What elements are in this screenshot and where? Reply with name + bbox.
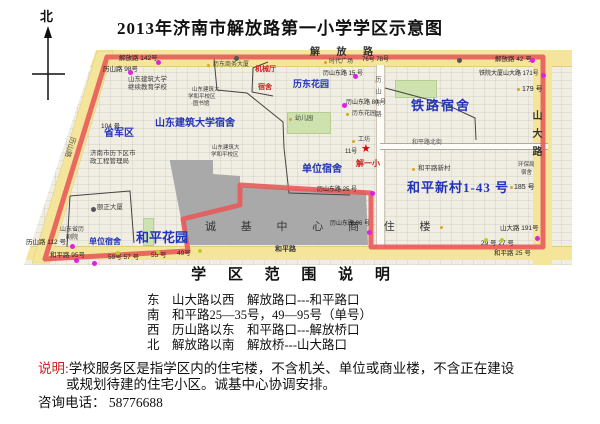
poi-dot-green (198, 249, 202, 253)
road-label-heping-north: 和平路北街 (412, 140, 442, 146)
address-label: 185 号 (514, 184, 535, 191)
poi-dot-yellow (517, 88, 520, 91)
poi-dot-yellow (510, 186, 513, 189)
building-label: 山东省历 (60, 227, 84, 233)
area-label-tielu-sushe: 铁路宿舍 (411, 99, 471, 112)
address-label: 59号 57 号 (108, 255, 139, 262)
building-label: 时代广场 (329, 59, 353, 65)
poi-dot-yellow (207, 64, 210, 67)
building-label: 环保局 (518, 163, 535, 169)
label-jixieting: 机械厅 (255, 66, 276, 73)
poi-dot-magenta (353, 74, 358, 79)
building-label: 工坊 (358, 137, 370, 143)
poi-dot-magenta (70, 244, 75, 249)
poi-dot-dark (457, 58, 462, 63)
note-line2: 或规划待建的住宅小区。诚基中心协调安排。 (66, 373, 336, 393)
building-label: 和平路新村 (418, 166, 451, 173)
building-label: 山东建筑大学 (128, 77, 167, 84)
poi-dot-magenta (535, 236, 540, 241)
poi-dot-magenta (156, 60, 161, 65)
legend-heading: 学 区 范 围 说 明 (5, 263, 585, 284)
building-label: 山东建筑大 (192, 88, 220, 94)
label-chengji-center: 诚 基 中 心 商 住 楼 (205, 222, 442, 233)
building-label: ·图书馆 (191, 102, 209, 108)
area-label-shengjunqu: 省军区 (104, 129, 134, 139)
poi-dot-magenta (367, 230, 372, 235)
building-label: 宿舍 (521, 171, 532, 177)
poi-dot-magenta (128, 70, 133, 75)
school-star-icon: ★ (361, 144, 371, 155)
area-label-danwei-sushe-mid: 单位宿舍 (302, 165, 342, 175)
address-label: 解放路 42 号 (495, 57, 532, 64)
poi-dot-green (500, 238, 504, 242)
address-label: 铁院大厦山大路 171号 (479, 71, 539, 77)
poi-dot-magenta (342, 103, 347, 108)
address-label: 历山东路 80 号 (346, 100, 386, 106)
poi-dot-yellow (324, 61, 327, 64)
address-label: 179 号 (522, 86, 543, 93)
building-label: 济南市历下区市 (90, 151, 136, 158)
building-label: 学和平校区 (211, 153, 239, 159)
label-jixieting-sushe: 宿舍 (258, 84, 272, 91)
building-label: 山东建筑大 (212, 146, 240, 152)
poi-dot-magenta (530, 58, 535, 63)
legend-line-north: 北 解放路以南 解放桥---山大路口 (147, 334, 347, 353)
heping-north-street-band (380, 143, 548, 150)
poi-dot-yellow (289, 118, 292, 121)
address-label: 历山路 112 号 (26, 240, 66, 247)
page-title: 2013年济南市解放路第一小学学区示意图 (20, 14, 540, 39)
address-label: 104 号 (101, 124, 120, 131)
address-label: 解放路 142号 (119, 56, 158, 63)
road-label-heping: 和平路 (275, 246, 296, 253)
area-label-jianzhu-daxue-sushe: 山东建筑大学宿舍 (155, 119, 235, 129)
address-label: 49号 (177, 251, 191, 258)
label-school: 解一小 (356, 160, 380, 168)
building-label: 历东花园 (352, 111, 376, 117)
poi-dot-green (484, 238, 488, 242)
building-label: 颐正大厦 (97, 205, 123, 212)
address-label: 55 号 (151, 253, 167, 260)
poi-dot-green (156, 250, 160, 254)
address-label: 76号 78号 (362, 57, 389, 63)
area-label-danwei-sushe-west: 单位宿舍 (89, 238, 121, 246)
note-label: 说明: (38, 361, 69, 376)
poi-dot-yellow (412, 168, 415, 171)
phone-number: 咨询电话： 58776688 (38, 391, 163, 411)
poi-dot-dark (234, 56, 239, 61)
building-label: 政工程管理局 (90, 159, 129, 166)
poi-dot-dark (91, 207, 96, 212)
poi-dot-yellow (352, 140, 355, 143)
address-label: 历山东路 96 号 (330, 221, 370, 227)
park-area (395, 80, 437, 98)
address-label: 山大路 191号 (500, 226, 539, 233)
address-label: 和平路 95号 (50, 253, 85, 260)
poi-dot-magenta (370, 191, 375, 196)
road-label-shanda: 山大路 (530, 110, 540, 164)
poi-dot-yellow (440, 226, 443, 229)
address-label: 11号 (345, 149, 357, 155)
address-label: 和平路 25 号 (494, 251, 531, 258)
building-label: 幼儿园 (295, 116, 313, 122)
school-district-flyer: 北 2013年济南市解放路第一小学学区示意图 解 放 路 山大路 和平路 和平路… (0, 0, 600, 424)
building-label: 历东商务大厦 (213, 62, 249, 68)
address-label: 历山东路 25 号 (317, 187, 357, 193)
area-label-lidong-huayuan: 历东花园 (293, 80, 329, 89)
building-label: 继续教育学校 (128, 85, 167, 92)
poi-dot-magenta (541, 73, 546, 78)
poi-dot-green (116, 251, 120, 255)
poi-dot-yellow (346, 113, 349, 116)
building-label: 学和平校区 (188, 95, 216, 101)
area-label-heping-xincun: 和平新村1-43 号 (407, 181, 509, 194)
area-label-heping-huayuan: 和平花园 (136, 231, 188, 244)
building-label: 剧院 (66, 235, 78, 241)
